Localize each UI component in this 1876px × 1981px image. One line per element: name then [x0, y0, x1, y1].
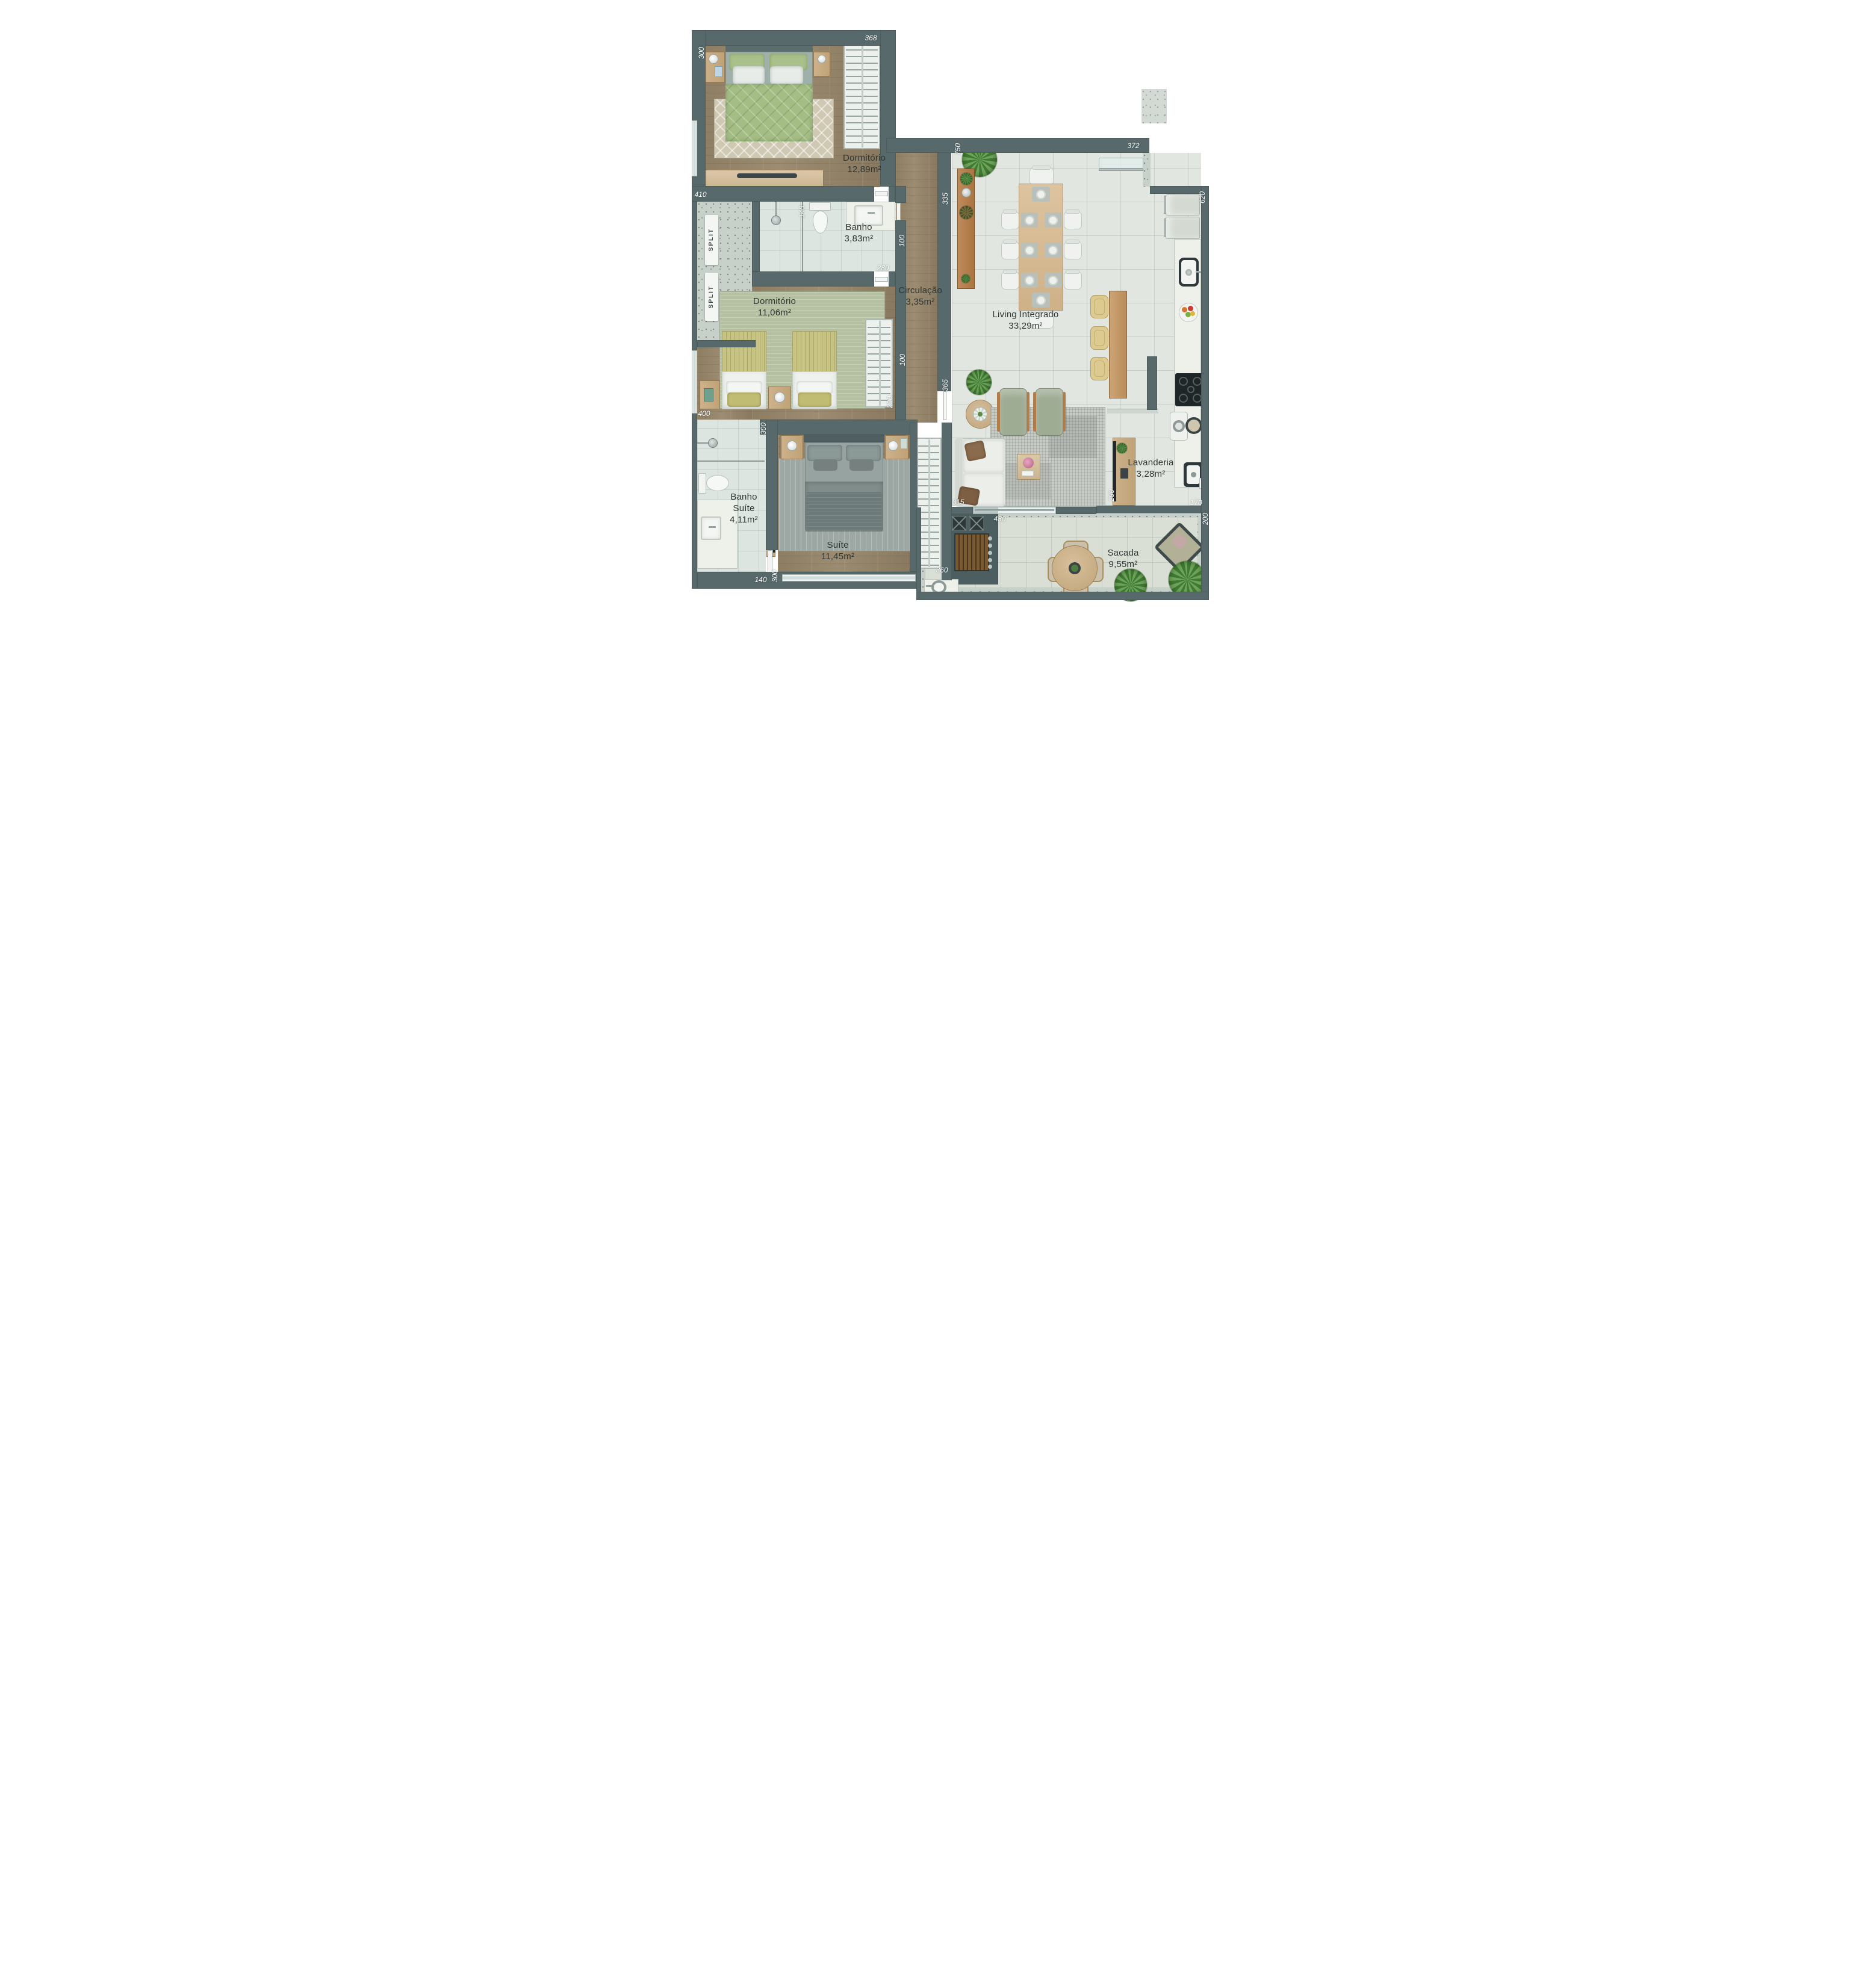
- plant-icon: [960, 206, 973, 219]
- room-name: Living Integrado: [978, 309, 1074, 320]
- room-label-suite: Suíte 11,45m²: [802, 539, 874, 562]
- plant-icon: [1117, 443, 1127, 453]
- dimension-label: 620: [1198, 191, 1207, 203]
- room-label-balcony: Sacada 9,55m²: [1087, 547, 1160, 570]
- dimension-label: 750: [954, 143, 962, 155]
- room-area: 4,11m²: [714, 514, 774, 525]
- dimension-label: 300: [759, 423, 768, 435]
- entry-door-track: [1099, 169, 1143, 171]
- door-bedroom-1: [875, 191, 888, 196]
- window: [692, 350, 697, 414]
- room-label-bedroom-2: Dormitório 11,06m²: [739, 296, 811, 318]
- split-ac-unit: SPLIT: [705, 215, 718, 265]
- wall: [916, 592, 1209, 600]
- fridge-handle: [1164, 219, 1166, 237]
- entry-door-glass: [1099, 158, 1143, 169]
- room-name: Dormitório: [739, 296, 811, 307]
- room-area: 12,89m²: [828, 164, 901, 175]
- dresser: [700, 170, 824, 187]
- plant-icon: [966, 370, 992, 395]
- plant-icon: [960, 173, 972, 185]
- wall: [752, 202, 760, 271]
- kitchen-sink: [1179, 258, 1199, 287]
- toilet: [809, 202, 831, 211]
- wall: [937, 138, 951, 391]
- wall: [1201, 186, 1209, 600]
- kitchen-island: [1109, 291, 1127, 398]
- entry-threshold: [1143, 153, 1151, 187]
- dimension-label: 400: [698, 409, 710, 418]
- dimension-label: 300: [697, 47, 706, 59]
- wall: [752, 271, 874, 287]
- wall: [1147, 356, 1157, 410]
- shower-glass: [697, 460, 765, 462]
- faucet-icon: [709, 526, 716, 528]
- room-name: Circulação: [884, 285, 957, 296]
- room-label-circulation: Circulação 3,35m²: [884, 285, 957, 308]
- washing-machine: [1170, 412, 1188, 441]
- wall: [697, 340, 756, 347]
- window-suite: [782, 574, 916, 581]
- single-bed: [792, 331, 837, 409]
- dimension-label: 100: [898, 235, 906, 247]
- room-area: 3,28m²: [1115, 468, 1187, 480]
- room-label-bathroom: Banho 3,83m²: [823, 222, 895, 244]
- door-bedroom-2: [875, 277, 888, 282]
- dimension-label: 410: [695, 190, 707, 199]
- dimension-label: 280: [1107, 489, 1116, 501]
- dimension-label: 300: [771, 570, 779, 582]
- room-name: Suíte: [714, 503, 774, 514]
- wall: [1056, 507, 1096, 514]
- toilet: [698, 473, 706, 494]
- room-name: Lavanderia: [1115, 457, 1187, 468]
- shower-arm: [775, 202, 777, 217]
- room-area: 11,06m²: [739, 307, 811, 318]
- plant-icon: [961, 274, 970, 283]
- armchair: [1036, 388, 1063, 436]
- room-name: Suíte: [802, 539, 874, 551]
- dimension-label: 335: [941, 193, 949, 205]
- room-area: 11,45m²: [802, 551, 874, 562]
- faucet-icon: [868, 212, 875, 214]
- door-suite-hall: [943, 391, 946, 420]
- lamp-icon: [775, 392, 784, 402]
- wall: [889, 186, 895, 202]
- dimension-label: 372: [1128, 141, 1140, 150]
- dimension-label: 140: [798, 206, 806, 218]
- dimension-label: 360: [936, 566, 948, 574]
- wall: [951, 507, 973, 514]
- dining-chair: [1030, 167, 1054, 185]
- room-area: 33,29m²: [978, 320, 1074, 332]
- door-bathroom: [896, 203, 901, 220]
- dimension-label: 365: [941, 379, 949, 391]
- refrigerator: [1166, 217, 1200, 239]
- split-label: SPLIT: [708, 228, 715, 251]
- wall: [766, 420, 778, 550]
- shower-head-icon: [772, 216, 780, 225]
- dining-chair: [1064, 241, 1082, 259]
- toilet-bowl: [706, 475, 729, 491]
- outside-mat: [1141, 89, 1167, 123]
- grill: [954, 533, 989, 571]
- double-bed-suite: [804, 435, 884, 532]
- decor-bowl: [962, 188, 971, 197]
- dimension-label: 170: [1190, 498, 1202, 507]
- fruit-bowl: [1179, 303, 1197, 321]
- room-label-living: Living Integrado 33,29m²: [978, 309, 1074, 332]
- bar-stool: [1090, 357, 1108, 380]
- bar-stool: [1090, 295, 1108, 318]
- dining-chair: [1064, 211, 1082, 229]
- faucet-icon: [926, 585, 933, 587]
- dimension-label: 200: [1201, 513, 1210, 525]
- wall: [942, 423, 952, 580]
- dimension-label: 100: [898, 354, 907, 366]
- window: [692, 120, 697, 176]
- room-name: Banho: [714, 491, 774, 503]
- lamp-icon: [818, 55, 825, 63]
- book: [715, 66, 722, 77]
- dining-chair: [1001, 271, 1019, 290]
- coffee-table: [1017, 454, 1040, 480]
- split-label: SPLIT: [708, 285, 715, 308]
- wall: [895, 186, 906, 203]
- dresser-tray: [737, 173, 797, 178]
- lamp-icon: [787, 441, 797, 450]
- dimension-label: 368: [865, 34, 877, 42]
- bar-stool: [1090, 326, 1108, 350]
- room-name: Banho: [823, 222, 895, 233]
- sideboard: [957, 169, 975, 289]
- lamp-icon: [889, 441, 898, 450]
- wall: [692, 30, 884, 46]
- dining-table: [1019, 184, 1063, 311]
- dimension-label: 315: [952, 498, 964, 506]
- laundry-shelf: [1107, 409, 1158, 414]
- book: [900, 438, 907, 449]
- shower-head-icon: [709, 439, 717, 447]
- wall: [760, 420, 918, 435]
- room-name: Sacada: [1087, 547, 1160, 559]
- wardrobe-bedroom-2: [865, 319, 893, 408]
- sofa: [955, 438, 1005, 507]
- wall: [916, 507, 921, 598]
- dining-chair: [1001, 211, 1019, 229]
- book: [704, 388, 713, 401]
- wall: [886, 138, 1149, 153]
- room-area: 9,55m²: [1087, 559, 1160, 570]
- room-label-bedroom-1: Dormitório 12,89m²: [828, 152, 901, 175]
- lamp-icon: [709, 55, 718, 63]
- armchair: [999, 388, 1027, 436]
- floor-plan: SPLIT SPLIT: [626, 0, 1251, 660]
- room-label-suite-bathroom: Banho Suíte 4,11m²: [714, 491, 774, 526]
- room-label-laundry: Lavanderia 3,28m²: [1115, 457, 1187, 480]
- vent-box: [969, 516, 984, 531]
- wall: [1096, 506, 1201, 513]
- room-area: 3,83m²: [823, 233, 895, 244]
- split-ac-unit: SPLIT: [705, 273, 718, 321]
- wall: [895, 220, 906, 423]
- wardrobe-bedroom-1: [843, 35, 880, 149]
- laundry-basket: [1185, 417, 1202, 434]
- room-area: 3,35m²: [884, 296, 957, 308]
- dimension-label: 290: [886, 396, 894, 408]
- room-name: Dormitório: [828, 152, 901, 164]
- double-bed-bedroom-1: [725, 46, 813, 141]
- vent-box: [952, 516, 967, 531]
- sliding-door-track: [975, 509, 1054, 511]
- dimension-label: 430: [994, 515, 1006, 523]
- dimension-label: 280: [877, 264, 889, 272]
- refrigerator: [1166, 194, 1200, 215]
- wall: [692, 186, 874, 202]
- dimension-label: 140: [755, 575, 767, 584]
- vase-plant-dot: [978, 412, 983, 417]
- dining-chair: [1001, 241, 1019, 259]
- fridge-handle: [1164, 196, 1166, 214]
- dining-chair: [1064, 271, 1082, 290]
